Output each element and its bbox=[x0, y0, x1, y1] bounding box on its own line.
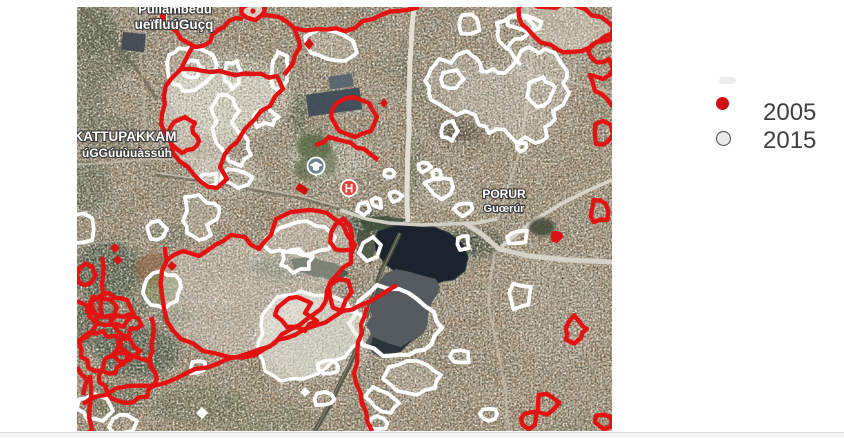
svg-text:Guœrúr: Guœrúr bbox=[484, 203, 526, 215]
svg-text:úGGúuùuàssúh: úGGúuùuàssúh bbox=[82, 146, 172, 160]
svg-text:KATTUPAKKAM: KATTUPAKKAM bbox=[77, 129, 176, 144]
svg-text:H: H bbox=[345, 182, 354, 196]
svg-text:ueïfluúGuçq: ueïfluúGuçq bbox=[135, 17, 214, 32]
svg-text:Pullambedu: Pullambedu bbox=[138, 7, 212, 17]
svg-text:PORUR: PORUR bbox=[482, 187, 526, 201]
